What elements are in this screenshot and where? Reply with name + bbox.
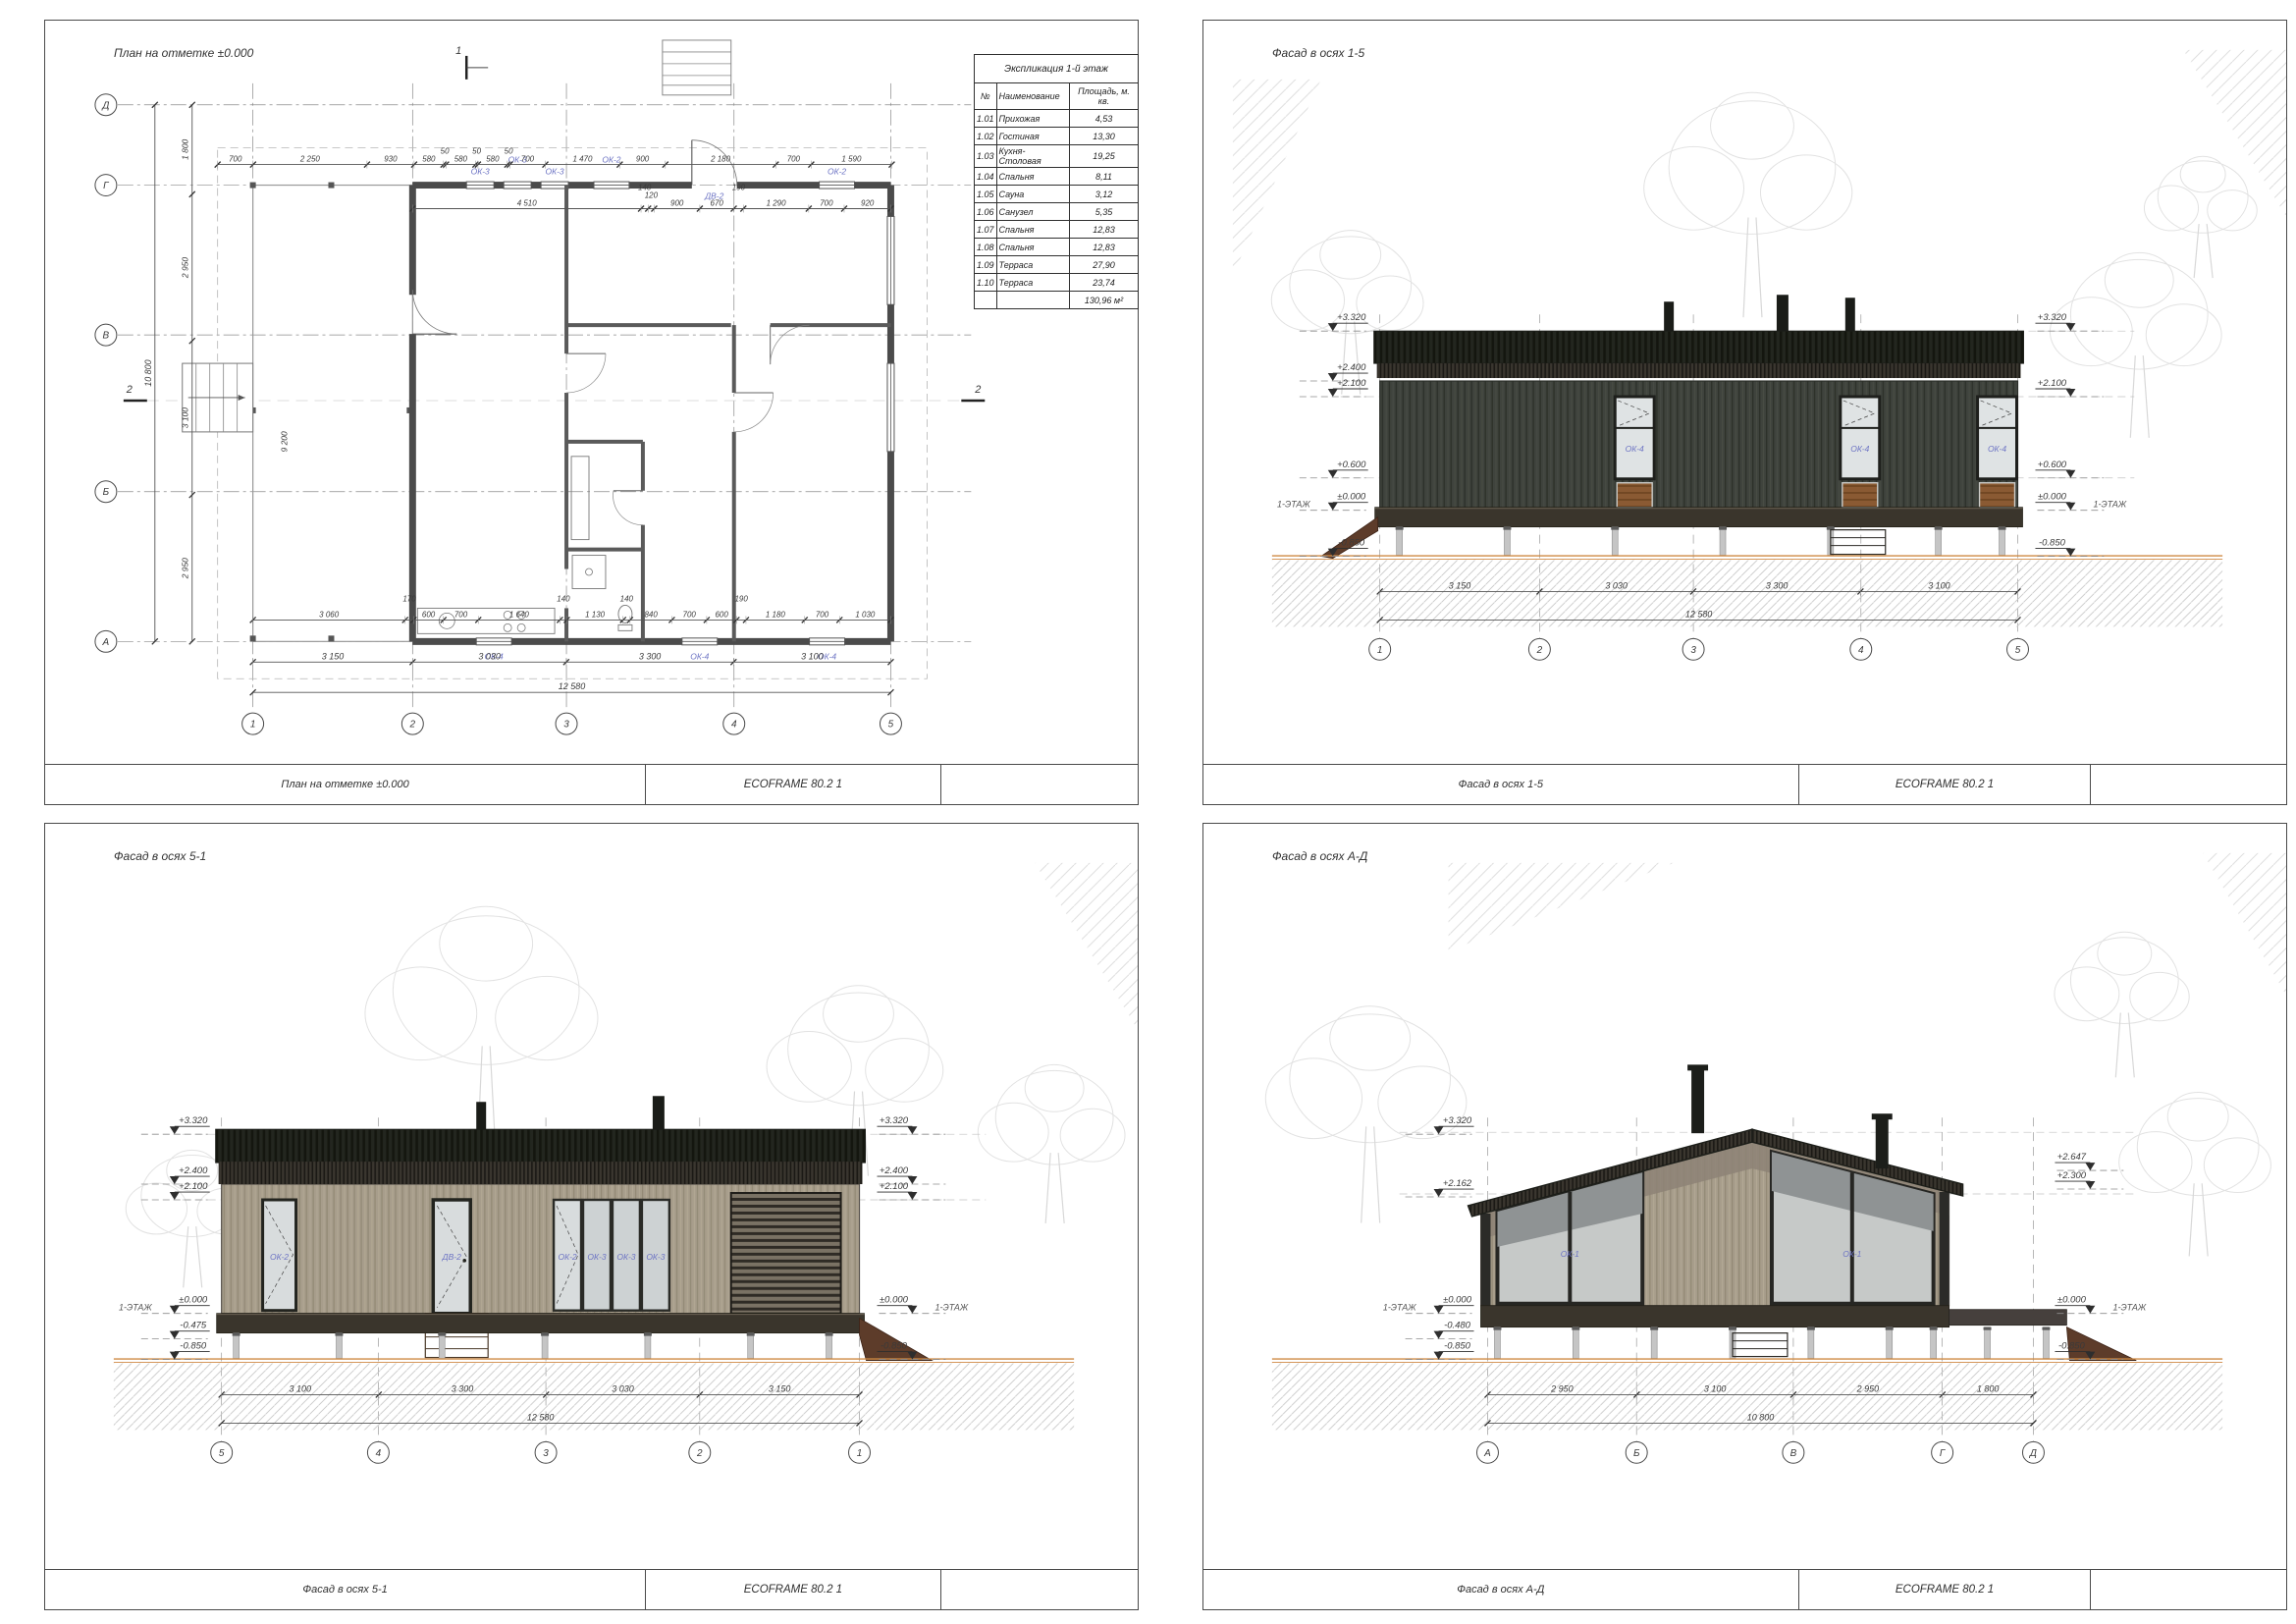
axis-label: 4 xyxy=(376,1448,382,1459)
pile xyxy=(1936,527,1942,556)
elevation-value: -0.480 xyxy=(1444,1321,1471,1331)
elevation-value: -0.850 xyxy=(180,1341,207,1352)
tree-foliage xyxy=(2158,161,2248,233)
axis-label: 2 xyxy=(696,1448,703,1459)
schedule-row: 1.09Терраса27,90 xyxy=(975,256,1139,274)
room-number: 1.07 xyxy=(975,221,997,239)
floor-level-label: 1-ЭТАЖ xyxy=(2094,500,2127,510)
schedule-row: 1.03Кухня-Столовая19,25 xyxy=(975,145,1139,168)
panel-floor-plan: План на отметке ±0.000 ОК-3ОК-3ОК-3ОК-2О… xyxy=(44,20,1139,805)
elevation-marker-icon xyxy=(2065,323,2075,331)
room-area: 12,83 xyxy=(1070,239,1139,256)
elevation-marker-icon xyxy=(170,1331,180,1339)
schedule-row: 1.01Прихожая4,53 xyxy=(975,110,1139,128)
panel-facade-a-d: Фасад в осях А-Д 2 9503 1002 9501 80010 … xyxy=(1202,823,2287,1610)
section-2-label: 2 xyxy=(974,384,981,396)
tree-foliage xyxy=(788,993,930,1106)
pile xyxy=(748,1333,754,1359)
elevation-marker-icon xyxy=(1328,503,1338,511)
elevation-value: ±0.000 xyxy=(179,1295,208,1306)
elevation-marker-icon xyxy=(2085,1306,2095,1314)
elevation-value: +3.320 xyxy=(179,1115,208,1126)
background-hatch-area xyxy=(1035,863,1138,1030)
elevation-value: +2.162 xyxy=(1443,1178,1472,1189)
tree-foliage xyxy=(1669,101,1836,235)
elevation-marker-icon xyxy=(1328,470,1338,478)
elevation-value: -0.850 xyxy=(2058,1341,2086,1352)
elevation-marker-icon xyxy=(1434,1126,1444,1134)
deck-band xyxy=(217,1314,865,1333)
plan-caption: План на отметке ±0.000 xyxy=(114,46,253,60)
window-tag: ОК-3 xyxy=(646,1252,665,1262)
floor-level-label: 1-ЭТАЖ xyxy=(119,1303,152,1313)
elevation-marker-icon xyxy=(1328,389,1338,397)
kitchen-sink xyxy=(439,613,454,628)
shower-tray xyxy=(572,556,606,589)
facadeAD-caption: Фасад в осях А-Д xyxy=(1272,849,1367,863)
dim-value: 1 800 xyxy=(181,138,190,159)
sauna-bench xyxy=(571,457,589,540)
schedule-col-name: Наименование xyxy=(996,83,1070,110)
dim-value: 4 510 xyxy=(517,199,538,208)
pile-cap xyxy=(644,1333,652,1336)
ramp xyxy=(860,1319,933,1361)
ground-hatch xyxy=(114,1364,1074,1431)
dim-value: 3 150 xyxy=(322,651,344,661)
room-area: 27,90 xyxy=(1070,256,1139,274)
window xyxy=(1615,397,1654,479)
room-number: 1.03 xyxy=(975,145,997,168)
elevation-marker-icon xyxy=(2085,1163,2095,1170)
pile-cap xyxy=(1935,527,1943,530)
pile-cap xyxy=(1503,527,1511,530)
room-number: 1.05 xyxy=(975,186,997,203)
dim-value: 3 100 xyxy=(181,407,190,428)
pile xyxy=(2043,1327,2049,1359)
dim-value: 670 xyxy=(711,199,724,208)
tree-foliage xyxy=(1330,1006,1411,1070)
elevation-marker-icon xyxy=(2065,503,2075,511)
tree-foliage xyxy=(2070,938,2178,1024)
dim-value: 3 100 xyxy=(1704,1383,1726,1393)
facade-wall xyxy=(1380,381,2018,511)
tree-trunk xyxy=(184,1226,202,1287)
elevation-value: ±0.000 xyxy=(2038,492,2067,503)
pile xyxy=(1720,527,1726,556)
dim-value: 1 180 xyxy=(766,610,786,619)
deck-band xyxy=(1375,508,2023,527)
dim-value: 50 xyxy=(441,147,450,156)
axis-label: Б xyxy=(103,487,110,498)
tree-trunk xyxy=(1362,1126,1380,1222)
dim-value: 700 xyxy=(454,610,468,619)
tree-foliage xyxy=(995,1070,1113,1164)
elevation-marker-icon xyxy=(907,1306,917,1314)
window-tag: ОК-1 xyxy=(1561,1249,1579,1259)
tree-trunk xyxy=(2189,1183,2208,1256)
window-tag: ОК-3 xyxy=(616,1252,635,1262)
drawing-sheet: План на отметке ±0.000 ОК-3ОК-3ОК-3ОК-2О… xyxy=(0,0,2296,1624)
room-number: 1.04 xyxy=(975,168,997,186)
pile-cap xyxy=(233,1333,240,1336)
shower-drain xyxy=(586,568,593,575)
dim-value: 3 100 xyxy=(1928,580,1949,590)
window-apron-panel xyxy=(1617,483,1652,508)
elevation-value: ±0.000 xyxy=(1337,492,1366,503)
roof-overhang-outline xyxy=(218,148,928,679)
schedule-row: 1.08Спальня12,83 xyxy=(975,239,1139,256)
window xyxy=(1841,397,1880,479)
corner-board xyxy=(1940,1192,1949,1306)
chimney xyxy=(653,1096,665,1129)
facade-5-1-drawing: 3 1003 3003 0303 15012 58054321+3.320+2.… xyxy=(45,824,1138,1570)
axis-label: 2 xyxy=(409,720,416,731)
titleblock-empty-cell xyxy=(2091,765,2286,804)
tree-foliage xyxy=(440,906,533,981)
room-name: Спальня xyxy=(996,221,1070,239)
pile xyxy=(1494,1327,1500,1359)
dim-value: 2 250 xyxy=(299,155,321,164)
pile-cap xyxy=(1611,527,1619,530)
dim-total-value: 10 800 xyxy=(1747,1412,1774,1422)
titleblock-empty-cell xyxy=(2091,1570,2286,1609)
elevation-marker-icon xyxy=(2065,389,2075,397)
window xyxy=(1978,397,2017,479)
tree-trunk xyxy=(2194,224,2213,278)
dim-value: 9 200 xyxy=(280,431,290,452)
pile xyxy=(2000,527,2005,556)
tree-foliage xyxy=(1644,146,1744,230)
axis-label: А xyxy=(1483,1448,1491,1459)
elevation-marker-icon xyxy=(1434,1331,1444,1339)
toilet-tank xyxy=(618,624,632,630)
dim-value: 190 xyxy=(734,594,748,603)
dim-value: 580 xyxy=(454,155,468,164)
dim-value: 700 xyxy=(683,610,697,619)
background-hatch-area xyxy=(1449,863,1675,951)
tree-foliage xyxy=(393,916,579,1065)
roof-fascia xyxy=(1374,331,2024,363)
stove-burner xyxy=(517,623,525,631)
dim-value: 2 950 xyxy=(1856,1383,1879,1393)
titleblock-drawing-name: Фасад в осях 1-5 xyxy=(1203,765,1799,804)
schedule-cell xyxy=(975,292,997,309)
axis-label: 5 xyxy=(2015,645,2021,656)
window-tag: ОК-1 xyxy=(1842,1249,1861,1259)
pile-cap xyxy=(1572,1327,1579,1330)
room-name: Терраса xyxy=(996,256,1070,274)
elevation-marker-icon xyxy=(2085,1181,2095,1189)
elevation-value: +2.400 xyxy=(179,1165,208,1176)
pile xyxy=(1504,527,1510,556)
elevation-value: +0.600 xyxy=(1337,460,1366,470)
elevation-marker-icon xyxy=(1328,323,1338,331)
dim-value: 3 150 xyxy=(1449,580,1470,590)
terrace-post xyxy=(250,183,256,189)
dim-value: 580 xyxy=(486,155,500,164)
schedule-row: 1.02Гостиная13,30 xyxy=(975,128,1139,145)
titleblock-empty-cell xyxy=(941,765,1138,804)
section-2-label: 2 xyxy=(126,384,133,396)
room-name: Кухня-Столовая xyxy=(996,145,1070,168)
pile xyxy=(1931,1327,1937,1359)
titleblock-project-name: ECOFRAME 80.2 1 xyxy=(1799,765,2092,804)
elevation-marker-icon xyxy=(907,1192,917,1200)
titleblock-drawing-name: Фасад в осях 5-1 xyxy=(45,1570,646,1609)
dim-value: 3 060 xyxy=(319,610,340,619)
titleblock-empty-cell xyxy=(941,1570,1138,1609)
pile xyxy=(645,1333,651,1359)
room-name: Гостиная xyxy=(996,128,1070,145)
dim-value: 3 100 xyxy=(801,651,823,661)
chimney-cap xyxy=(1872,1113,1893,1119)
dim-value: 700 xyxy=(816,610,829,619)
room-schedule-table: Экспликация 1-й этаж№НаименованиеПлощадь… xyxy=(974,54,1139,309)
window-tag: ОК-4 xyxy=(690,651,709,661)
window-tag: ОК-4 xyxy=(1988,444,2006,454)
terrace-post xyxy=(328,635,334,641)
pile-cap xyxy=(541,1333,549,1336)
dim-total-value: 12 580 xyxy=(1685,609,1712,619)
pile xyxy=(1573,1327,1578,1359)
titleblock: План на отметке ±0.000 ECOFRAME 80.2 1 xyxy=(45,764,1138,804)
roof-fascia xyxy=(216,1129,866,1163)
axis-label: 5 xyxy=(219,1448,225,1459)
pile-cap xyxy=(826,1333,833,1336)
dim-total-value: 12 580 xyxy=(527,1412,554,1422)
ground-hatch xyxy=(1272,561,2222,627)
pile-cap xyxy=(335,1333,343,1336)
pile-cap xyxy=(1999,527,2006,530)
window-tag: ДВ-2 xyxy=(442,1252,461,1262)
tree-foliage xyxy=(365,967,477,1060)
elevation-value: +3.320 xyxy=(1337,312,1366,323)
chimney-cap xyxy=(1687,1064,1708,1070)
pile xyxy=(1612,527,1618,556)
dim-value: 140 xyxy=(557,594,570,603)
dim-value: 900 xyxy=(636,155,650,164)
room-number: 1.01 xyxy=(975,110,997,128)
tree-foliage xyxy=(1271,270,1344,331)
pile xyxy=(1808,1327,1814,1359)
tree-foliage xyxy=(2144,186,2198,231)
dim-value: 50 xyxy=(505,147,513,156)
room-number: 1.08 xyxy=(975,239,997,256)
room-area: 12,83 xyxy=(1070,221,1139,239)
dim-value: 3 030 xyxy=(478,651,500,661)
dim-value: 2 180 xyxy=(710,155,731,164)
pile-cap xyxy=(1729,1327,1736,1330)
titleblock: Фасад в осях 1-5 ECOFRAME 80.2 1 xyxy=(1203,764,2286,804)
pile xyxy=(336,1333,342,1359)
dim-value: 3 100 xyxy=(290,1383,311,1393)
axis-label: В xyxy=(1790,1448,1797,1459)
axis-label: Д xyxy=(101,100,109,111)
pile-cap xyxy=(1807,1327,1815,1330)
axis-label: А xyxy=(102,637,110,648)
window-apron-panel xyxy=(1842,483,1878,508)
chimney xyxy=(1777,295,1789,331)
facade-a-d-drawing: 2 9503 1002 9501 80010 800АБВГД+3.320+2.… xyxy=(1203,824,2286,1570)
axis-label: 4 xyxy=(731,720,737,731)
elevation-value: +3.320 xyxy=(1443,1115,1472,1126)
roof-batten-row xyxy=(1377,363,2021,378)
tree-foliage xyxy=(2137,1099,2259,1196)
pile-cap xyxy=(1396,527,1404,530)
tree-foliage xyxy=(1711,92,1794,159)
tree-foliage xyxy=(1265,1058,1362,1139)
titleblock-drawing-name: Фасад в осях А-Д xyxy=(1203,1570,1799,1609)
background-hatch-area xyxy=(2203,853,2286,996)
pile-cap xyxy=(1719,527,1727,530)
axis-label: 3 xyxy=(543,1448,549,1459)
dim-value: 600 xyxy=(422,610,436,619)
dim-value: 700 xyxy=(787,155,801,164)
pile xyxy=(542,1333,548,1359)
titleblock: Фасад в осях 5-1 ECOFRAME 80.2 1 xyxy=(45,1569,1138,1609)
terrace-outline xyxy=(253,186,413,642)
titleblock-project-name: ECOFRAME 80.2 1 xyxy=(1799,1570,2092,1609)
door-swing-arc xyxy=(734,393,774,432)
dim-value: 700 xyxy=(521,155,535,164)
pile-cap xyxy=(1650,1327,1658,1330)
pile-cap xyxy=(1493,1327,1501,1330)
entry-steps xyxy=(1733,1333,1788,1357)
elevation-value: -0.850 xyxy=(881,1341,908,1352)
elevation-value: +3.320 xyxy=(880,1115,909,1126)
dim-value: 2 950 xyxy=(181,257,190,279)
facade51-caption: Фасад в осях 5-1 xyxy=(114,849,206,863)
elevation-value: -0.850 xyxy=(2039,538,2066,549)
background-hatch-area xyxy=(2183,50,2286,217)
schedule-row: 1.06Санузел5,35 xyxy=(975,203,1139,221)
dim-value: 140 xyxy=(620,594,634,603)
titleblock-project-name: ECOFRAME 80.2 1 xyxy=(646,1570,941,1609)
deck-band xyxy=(1480,1306,1949,1327)
schedule-row: 1.04Спальня8,11 xyxy=(975,168,1139,186)
room-area: 5,35 xyxy=(1070,203,1139,221)
tree-foliage xyxy=(2098,932,2152,975)
axis-label: 3 xyxy=(1690,645,1696,656)
elevation-marker-icon xyxy=(170,1192,180,1200)
elevation-marker-icon xyxy=(1434,1189,1444,1197)
window-tag: ОК-3 xyxy=(546,167,564,177)
pile xyxy=(439,1333,445,1359)
tree-trunk xyxy=(2115,1012,2134,1077)
schedule-total: 130,96 м² xyxy=(1070,292,1139,309)
pile-cap xyxy=(438,1333,446,1336)
room-number: 1.02 xyxy=(975,128,997,145)
tree-foliage xyxy=(2180,156,2225,192)
tree-trunk xyxy=(1743,217,1762,317)
room-name: Спальня xyxy=(996,239,1070,256)
dim-value: 700 xyxy=(229,155,242,164)
elevation-value: +2.400 xyxy=(880,1165,909,1176)
pile-cap xyxy=(2042,1327,2050,1330)
window-tag: ОК-2 xyxy=(558,1252,576,1262)
facade15-caption: Фасад в осях 1-5 xyxy=(1272,46,1364,60)
tree-foliage xyxy=(2050,298,2132,366)
axis-label: 4 xyxy=(1858,645,1864,656)
axis-label: 5 xyxy=(888,720,894,731)
room-area: 4,53 xyxy=(1070,110,1139,128)
room-name: Терраса xyxy=(996,274,1070,292)
elevation-value: ±0.000 xyxy=(880,1295,909,1306)
axis-label: Д xyxy=(2029,1448,2037,1459)
panel-facade-1-5: Фасад в осях 1-5 ОК-4ОК-4ОК-43 1503 0303… xyxy=(1202,20,2287,805)
schedule-col-num: № xyxy=(975,83,997,110)
pile xyxy=(1985,1327,1991,1359)
room-area: 23,74 xyxy=(1070,274,1139,292)
pile xyxy=(1651,1327,1657,1359)
dim-value: 190 xyxy=(732,184,746,192)
schedule-title: Экспликация 1-й этаж xyxy=(975,55,1139,83)
room-area: 13,30 xyxy=(1070,128,1139,145)
room-name: Спальня xyxy=(996,168,1070,186)
schedule-row: 130,96 м² xyxy=(975,292,1139,309)
elevation-value: -0.850 xyxy=(1338,538,1365,549)
tree-foliage xyxy=(2119,1132,2192,1193)
dim-value: 900 xyxy=(670,199,684,208)
elevation-value: +2.100 xyxy=(1337,378,1366,389)
room-area: 3,12 xyxy=(1070,186,1139,203)
dim-value: 3 300 xyxy=(639,651,661,661)
window-tag: ОК-3 xyxy=(471,167,490,177)
panel-facade-5-1: Фасад в осях 5-1 3 1003 3003 0303 15012 … xyxy=(44,823,1139,1610)
room-area: 19,25 xyxy=(1070,145,1139,168)
tree-trunk xyxy=(1045,1153,1064,1223)
dim-value: 120 xyxy=(645,191,659,200)
axis-label: 1 xyxy=(250,720,256,731)
tree-foliage xyxy=(1320,231,1381,279)
schedule: Экспликация 1-й этаж№НаименованиеПлощадь… xyxy=(974,54,1139,309)
dim-value: 3 030 xyxy=(612,1383,633,1393)
background-hatch-area xyxy=(1233,80,1321,275)
walkway-deck xyxy=(1949,1310,2067,1326)
dim-value: 3 030 xyxy=(1605,580,1627,590)
elevation-value: +2.647 xyxy=(2057,1152,2087,1163)
elevation-marker-icon xyxy=(2065,470,2075,478)
tree-foliage xyxy=(767,1031,851,1102)
door-swing-arc xyxy=(412,290,456,334)
room-number: 1.09 xyxy=(975,256,997,274)
dim-value: 1 130 xyxy=(585,610,606,619)
elevation-value: +0.600 xyxy=(2038,460,2067,470)
elevation-value: -0.475 xyxy=(180,1321,207,1331)
window-tag: ОК-4 xyxy=(1626,444,1644,454)
schedule-row: 1.10Терраса23,74 xyxy=(975,274,1139,292)
window-tag: ОК-4 xyxy=(1850,444,1869,454)
elevation-value: +2.300 xyxy=(2057,1170,2087,1181)
facade-1-5-drawing: ОК-4ОК-4ОК-43 1503 0303 3003 10012 58012… xyxy=(1203,21,2286,765)
room-name: Прихожая xyxy=(996,110,1070,128)
axis-label: 1 xyxy=(857,1448,863,1459)
tree-foliage xyxy=(2105,252,2173,307)
elevation-value: ±0.000 xyxy=(2057,1295,2087,1306)
room-name: Санузел xyxy=(996,203,1070,221)
dim-value: 3 300 xyxy=(452,1383,473,1393)
kitchen-counter xyxy=(417,608,555,633)
elevation-marker-icon xyxy=(170,1126,180,1134)
floor-level-label: 1-ЭТАЖ xyxy=(1383,1303,1416,1313)
elevation-marker-icon xyxy=(907,1126,917,1134)
dim-total-value: 10 800 xyxy=(143,359,153,386)
elevation-value: +3.320 xyxy=(2038,312,2067,323)
pile-cap xyxy=(747,1333,755,1336)
dim-value: 170 xyxy=(402,594,416,603)
corner-board xyxy=(1480,1214,1490,1306)
dim-value: 930 xyxy=(384,155,398,164)
